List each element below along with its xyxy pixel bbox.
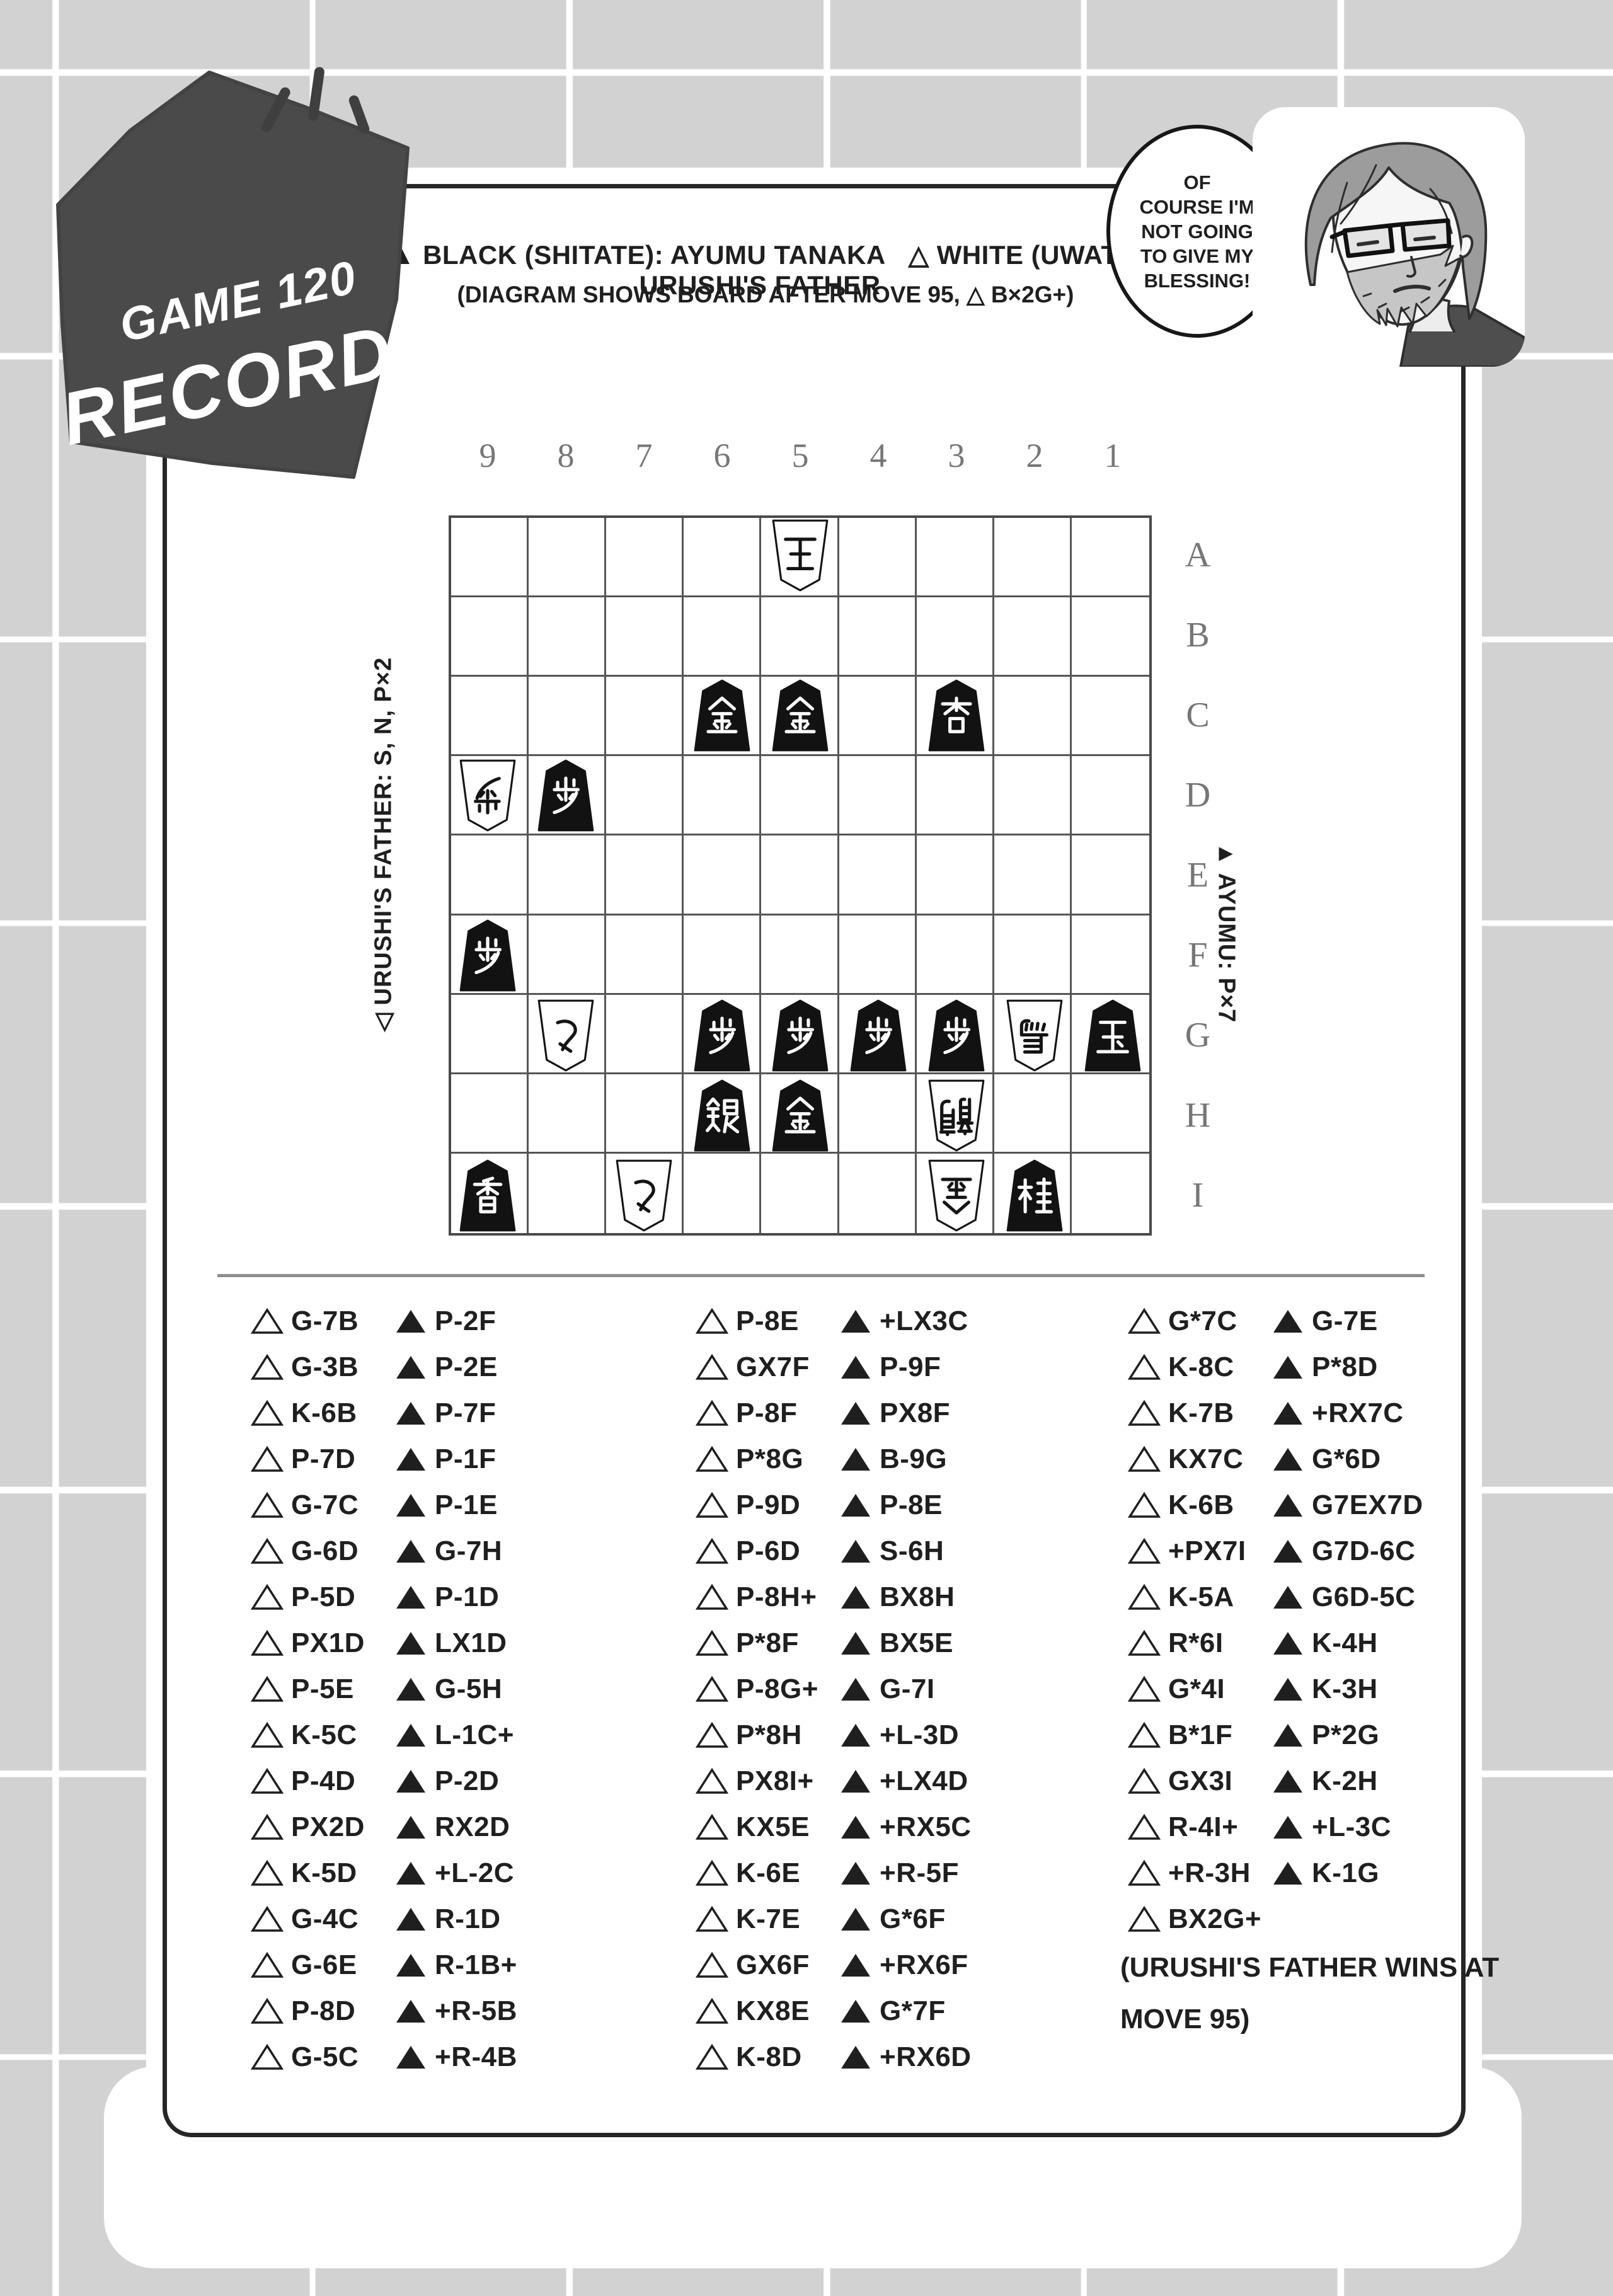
shogi-piece-black-pawn <box>454 918 521 996</box>
row-letter-label: I <box>1169 1156 1226 1236</box>
move-row: R*6IK-4H <box>1128 1620 1481 1666</box>
board-cell <box>1072 677 1149 756</box>
column-number-label: 1 <box>1074 436 1152 475</box>
black-move: +L-3C <box>1312 1804 1391 1850</box>
white-move-icon <box>696 1905 728 1933</box>
pawn-kanji-icon <box>689 998 755 1073</box>
board-cell <box>839 597 917 677</box>
black-move: BX8H <box>880 1574 955 1620</box>
move-row: R-4I++L-3C <box>1128 1804 1481 1850</box>
pawn-kanji-icon <box>923 998 990 1073</box>
move-row: K-7EG*6F <box>696 1896 1048 1942</box>
black-move-icon <box>1271 1767 1304 1795</box>
move-row: KX5E+RX5C <box>696 1804 1048 1850</box>
black-move-icon <box>839 1951 872 1979</box>
white-move: G-6D <box>291 1528 359 1574</box>
white-move-icon <box>251 1445 284 1473</box>
move-row: G-3BP-2E <box>251 1344 604 1390</box>
board-cell <box>606 756 684 835</box>
speech-line: COURSE I'M <box>1139 195 1254 219</box>
white-move: KX5E <box>736 1804 810 1850</box>
board-column-numbers: 987654321 <box>449 436 1152 473</box>
white-move: K-7B <box>1168 1390 1234 1436</box>
white-move-icon <box>1128 1307 1161 1335</box>
board-cell <box>917 518 994 597</box>
white-move-symbol <box>1128 1436 1161 1482</box>
move-row: BX2G+ <box>1128 1896 1481 1942</box>
black-move-icon <box>1271 1813 1304 1841</box>
white-move-icon <box>696 1307 728 1335</box>
white-move-icon <box>251 1951 284 1979</box>
black-move: G7D-6C <box>1312 1528 1415 1574</box>
white-hand-label: ◁ URUSHI'S FATHER: S, N, P×2 <box>369 657 398 1031</box>
board-cell <box>1072 835 1149 915</box>
white-move: PX8I+ <box>736 1758 814 1804</box>
white-move: P-8D <box>291 1988 355 2034</box>
white-move-symbol <box>251 1298 284 1344</box>
white-move: P*8F <box>736 1620 799 1666</box>
move-row: G-7CP-1E <box>251 1482 604 1528</box>
board-cell <box>684 518 761 597</box>
black-hand-label: ▲ AYUMU: P×7 <box>1213 842 1240 1023</box>
shogi-piece-black-gold <box>767 678 834 756</box>
black-move-icon <box>1271 1721 1304 1749</box>
black-move: P*8D <box>1312 1344 1378 1390</box>
black-move: K-2H <box>1312 1758 1378 1804</box>
dragon-kanji-icon <box>923 1078 990 1153</box>
speech-line: BLESSING! <box>1139 268 1254 293</box>
black-move-symbol <box>839 1988 872 2034</box>
black-move-symbol <box>839 1804 872 1850</box>
black-move-icon <box>394 1675 427 1703</box>
move-row: G-6ER-1B+ <box>251 1942 604 1988</box>
black-move-symbol <box>1271 1666 1304 1712</box>
black-move-symbol <box>1271 1344 1304 1390</box>
white-move: G-4C <box>291 1896 359 1942</box>
white-move: +PX7I <box>1168 1528 1246 1574</box>
black-move-symbol <box>394 1666 427 1712</box>
move-row: K-6BG7EX7D <box>1128 1482 1481 1528</box>
white-move-symbol <box>696 1390 728 1436</box>
white-move-symbol <box>696 1298 728 1344</box>
move-row: K-7B+RX7C <box>1128 1390 1481 1436</box>
move-row: K-6E+R-5F <box>696 1850 1048 1896</box>
white-move: R*6I <box>1168 1620 1224 1666</box>
black-move-symbol <box>1271 1298 1304 1344</box>
tokin-kanji-icon <box>532 998 599 1073</box>
white-move-icon <box>696 1629 728 1657</box>
shogi-piece-black-pawn <box>923 998 990 1076</box>
board-cell <box>761 597 839 677</box>
board-cell <box>839 1154 917 1233</box>
move-row: P*8FBX5E <box>696 1620 1048 1666</box>
move-row: KX8EG*7F <box>696 1988 1048 2034</box>
move-row: G*7CG-7E <box>1128 1298 1481 1344</box>
black-move-icon <box>394 1813 427 1841</box>
board-cell <box>606 916 684 995</box>
black-move: G7EX7D <box>1312 1482 1423 1528</box>
board-cell <box>529 916 606 995</box>
white-move: K-8D <box>736 2034 802 2080</box>
white-move-icon <box>251 1491 284 1519</box>
black-move-icon <box>839 1629 872 1657</box>
column-number-label: 3 <box>917 436 996 475</box>
gold-kanji-icon <box>923 1158 990 1233</box>
black-move-symbol <box>394 1804 427 1850</box>
black-move-symbol <box>1271 1390 1304 1436</box>
move-row: P*8GB-9G <box>696 1436 1048 1482</box>
move-row: K-8CP*8D <box>1128 1344 1481 1390</box>
black-move: P*2G <box>1312 1712 1379 1758</box>
white-move: P-8H+ <box>736 1574 817 1620</box>
black-move: +RX7C <box>1312 1390 1404 1436</box>
black-move-symbol <box>394 1528 427 1574</box>
gold-kanji-icon <box>767 678 834 753</box>
move-row: KX7CG*6D <box>1128 1436 1481 1482</box>
white-move-icon <box>1128 1491 1161 1519</box>
board-cell <box>839 835 917 915</box>
white-move: PX1D <box>291 1620 365 1666</box>
white-move-icon <box>696 1813 728 1841</box>
white-move-symbol <box>251 1666 284 1712</box>
shogi-piece-black-promoted-lance <box>923 678 990 756</box>
move-row: GX3IK-2H <box>1128 1758 1481 1804</box>
white-move-icon <box>1128 1445 1161 1473</box>
board-cell <box>1072 1074 1149 1154</box>
black-move: S-6H <box>880 1528 944 1574</box>
white-move-icon <box>1128 1813 1161 1841</box>
board-cell <box>451 518 529 597</box>
board-cell <box>684 916 761 995</box>
white-move-symbol <box>251 1482 284 1528</box>
black-move-symbol <box>839 2034 872 2080</box>
white-move: K-7E <box>736 1896 800 1942</box>
board-cell <box>529 677 606 756</box>
move-row: G-6DG-7H <box>251 1528 604 1574</box>
white-move: P-7D <box>291 1436 355 1482</box>
white-move-symbol <box>1128 1712 1161 1758</box>
white-move-symbol <box>696 1712 728 1758</box>
black-move-symbol <box>839 1298 872 1344</box>
black-move: G*6F <box>880 1896 946 1942</box>
shogi-piece-black-lance <box>454 1158 521 1236</box>
move-row: K-5CL-1C+ <box>251 1712 604 1758</box>
white-move-icon <box>696 1767 728 1795</box>
white-move-icon <box>1128 1399 1161 1427</box>
white-move-symbol <box>251 1758 284 1804</box>
speech-line: NOT GOING <box>1139 219 1254 244</box>
move-row: P-9DP-8E <box>696 1482 1048 1528</box>
row-letter-label: B <box>1169 595 1226 675</box>
white-move: GX7F <box>736 1344 810 1390</box>
white-move-icon <box>696 1951 728 1979</box>
shogi-piece-white-king <box>767 518 834 596</box>
board-cell <box>839 916 917 995</box>
black-move-icon <box>394 1721 427 1749</box>
black-move-symbol <box>839 1850 872 1896</box>
black-move-symbol <box>394 1574 427 1620</box>
white-move-symbol <box>251 1850 284 1896</box>
move-row: P-8FPX8F <box>696 1390 1048 1436</box>
black-move: K-1G <box>1312 1850 1379 1896</box>
row-letter-label: H <box>1169 1076 1226 1156</box>
board-cell <box>529 835 606 915</box>
board-cell <box>839 756 917 835</box>
white-move-icon <box>251 1767 284 1795</box>
black-move-icon <box>394 1353 427 1381</box>
move-row: P-7DP-1F <box>251 1436 604 1482</box>
white-move-icon <box>1128 1353 1161 1381</box>
white-move-symbol <box>696 2034 728 2080</box>
board-cell <box>684 835 761 915</box>
white-move-symbol <box>696 1620 728 1666</box>
black-move-symbol <box>839 1390 872 1436</box>
black-move: K-3H <box>1312 1666 1378 1712</box>
white-move-icon <box>251 1859 284 1887</box>
white-move-icon <box>696 1353 728 1381</box>
white-move: G-6E <box>291 1942 357 1988</box>
white-move: P-8G+ <box>736 1666 818 1712</box>
black-move-icon <box>394 2043 427 2071</box>
black-move: L-1C+ <box>435 1712 514 1758</box>
white-move-symbol <box>696 1804 728 1850</box>
board-cell <box>761 835 839 915</box>
move-row: +R-3HK-1G <box>1128 1850 1481 1896</box>
board-cell <box>606 995 684 1074</box>
shogi-piece-white-gold <box>923 1158 990 1236</box>
move-row: PX8I++LX4D <box>696 1758 1048 1804</box>
board-cell <box>606 1074 684 1154</box>
white-move-symbol <box>696 1482 728 1528</box>
white-move-icon <box>696 1491 728 1519</box>
pawn-kanji-icon <box>532 758 599 833</box>
white-move-symbol <box>1128 1896 1161 1942</box>
black-move-symbol <box>839 1344 872 1390</box>
black-move-icon <box>839 1997 872 2025</box>
white-move-icon <box>251 1997 284 2025</box>
white-move-symbol <box>696 1528 728 1574</box>
white-move-icon <box>251 1813 284 1841</box>
board-cell <box>839 1074 917 1154</box>
black-move-symbol <box>394 1390 427 1436</box>
board-cell <box>917 597 994 677</box>
white-move-symbol <box>696 1758 728 1804</box>
manga-game-record-page: GAME 120 RECORD ▲ BLACK (SHITATE): AYUMU… <box>0 0 1613 2296</box>
white-move-icon <box>1128 1583 1161 1611</box>
column-number-label: 9 <box>449 436 527 475</box>
white-move: GX3I <box>1168 1758 1232 1804</box>
black-move-icon <box>1271 1537 1304 1565</box>
black-move-symbol <box>1271 1712 1304 1758</box>
white-move: BX2G+ <box>1168 1896 1261 1942</box>
white-move: G-3B <box>291 1344 359 1390</box>
speech-line: TO GIVE MY <box>1139 244 1254 268</box>
black-move: G*7F <box>880 1988 946 2034</box>
gold-kanji-icon <box>767 1078 834 1153</box>
black-move-icon <box>839 1307 872 1335</box>
black-move: +LX4D <box>880 1758 968 1804</box>
shogi-piece-black-pawn <box>689 998 755 1076</box>
black-move-symbol <box>394 1896 427 1942</box>
board-cell <box>529 518 606 597</box>
horse-kanji-icon <box>1001 998 1068 1073</box>
board-cell <box>1072 518 1149 597</box>
knight-kanji-icon <box>1001 1158 1068 1233</box>
white-move-icon <box>1128 1905 1161 1933</box>
board-cell <box>994 518 1072 597</box>
pawn-kanji-icon <box>454 918 521 993</box>
move-row: K-5D+L-2C <box>251 1850 604 1896</box>
white-move-symbol <box>696 1988 728 2034</box>
black-move-icon <box>1271 1399 1304 1427</box>
shogi-piece-white-pawn <box>454 758 521 836</box>
move-row: PX1DLX1D <box>251 1620 604 1666</box>
move-row: P-8G+G-7I <box>696 1666 1048 1712</box>
black-move-symbol <box>1271 1850 1304 1896</box>
white-move-symbol <box>1128 1620 1161 1666</box>
black-move: +LX3C <box>880 1298 968 1344</box>
black-move-icon <box>839 1767 872 1795</box>
white-move: K-5C <box>291 1712 357 1758</box>
shogi-piece-white-horse <box>1001 998 1068 1076</box>
column-number-label: 8 <box>527 436 605 475</box>
black-move: P-1F <box>435 1436 496 1482</box>
black-move-icon <box>839 1491 872 1519</box>
black-move-icon <box>839 2043 872 2071</box>
board-cell <box>1072 597 1149 677</box>
shogi-piece-white-dragon <box>923 1078 990 1156</box>
board-cell <box>1072 756 1149 835</box>
white-move: G-7B <box>291 1298 359 1344</box>
black-move-icon <box>839 1859 872 1887</box>
black-move-icon <box>1271 1445 1304 1473</box>
black-move: P-1E <box>435 1482 498 1528</box>
column-number-label: 6 <box>683 436 761 475</box>
white-move-symbol <box>251 1988 284 2034</box>
black-move-symbol <box>394 1942 427 1988</box>
shogi-piece-black-silver <box>689 1078 755 1156</box>
black-move: B-9G <box>880 1436 947 1482</box>
white-move-symbol <box>696 1574 728 1620</box>
black-move: +L-2C <box>435 1850 514 1896</box>
black-move: BX5E <box>880 1620 953 1666</box>
white-move-symbol <box>251 1896 284 1942</box>
shogi-piece-black-pawn <box>767 998 834 1076</box>
black-move-icon <box>839 1721 872 1749</box>
row-letter-label: D <box>1169 755 1226 835</box>
black-move: RX2D <box>435 1804 510 1850</box>
black-move-symbol <box>839 1942 872 1988</box>
black-move-icon <box>839 1813 872 1841</box>
white-move: P-5E <box>291 1666 354 1712</box>
white-move-icon <box>696 1445 728 1473</box>
black-move-symbol <box>394 1620 427 1666</box>
black-move: P-7F <box>435 1390 496 1436</box>
black-move-symbol <box>839 1712 872 1758</box>
black-move-icon <box>1271 1675 1304 1703</box>
move-row: K-5AG6D-5C <box>1128 1574 1481 1620</box>
white-move-icon <box>251 1583 284 1611</box>
black-move: K-4H <box>1312 1620 1378 1666</box>
black-move: P-1D <box>435 1574 499 1620</box>
white-move-icon <box>251 1675 284 1703</box>
black-move-icon <box>839 1445 872 1473</box>
black-move-icon <box>394 1399 427 1427</box>
white-move-icon <box>696 1583 728 1611</box>
move-row: G*4IK-3H <box>1128 1666 1481 1712</box>
white-move: K-8C <box>1168 1344 1234 1390</box>
white-move: P-4D <box>291 1758 355 1804</box>
result-note-line1: (URUSHI'S FATHER WINS AT <box>1120 1952 1499 1983</box>
black-move-icon <box>394 1997 427 2025</box>
black-move-symbol <box>394 2034 427 2080</box>
move-row: G-7BP-2F <box>251 1298 604 1344</box>
black-move-symbol <box>1271 1436 1304 1482</box>
shogi-piece-white-tokin <box>611 1158 677 1236</box>
white-move-icon <box>251 1537 284 1565</box>
board-cell <box>761 756 839 835</box>
board-cell <box>529 597 606 677</box>
diagram-note: (DIAGRAM SHOWS BOARD AFTER MOVE 95, △ B×… <box>324 281 1207 308</box>
white-move-icon <box>251 2043 284 2071</box>
move-row: PX2DRX2D <box>251 1804 604 1850</box>
white-move-symbol <box>696 1850 728 1896</box>
board-cell <box>451 1074 529 1154</box>
move-row: K-6BP-7F <box>251 1390 604 1436</box>
white-move-symbol <box>251 1344 284 1390</box>
black-move: PX8F <box>880 1390 950 1436</box>
board-cell <box>606 677 684 756</box>
white-move: KX8E <box>736 1988 810 2034</box>
black-move: G6D-5C <box>1312 1574 1415 1620</box>
white-move-icon <box>251 1721 284 1749</box>
black-move: P-2E <box>435 1344 498 1390</box>
white-move-icon <box>251 1307 284 1335</box>
board-cell <box>684 756 761 835</box>
black-move-symbol <box>1271 1620 1304 1666</box>
black-move: G-7I <box>880 1666 935 1712</box>
white-move-icon <box>1128 1537 1161 1565</box>
white-move-symbol <box>696 1896 728 1942</box>
white-move-icon <box>251 1399 284 1427</box>
black-move: +R-5F <box>880 1850 959 1896</box>
white-move-icon <box>1128 1675 1161 1703</box>
black-move-icon <box>394 1951 427 1979</box>
move-row: P-8E+LX3C <box>696 1298 1048 1344</box>
shogi-piece-black-gold <box>689 678 755 756</box>
board-cell <box>994 835 1072 915</box>
black-move: +RX6F <box>880 1942 968 1988</box>
black-move: R-1B+ <box>435 1942 517 1988</box>
black-move-icon <box>394 1537 427 1565</box>
lance-kanji-icon <box>454 1158 521 1233</box>
black-move-icon <box>394 1905 427 1933</box>
black-move: +R-5B <box>435 1988 517 2034</box>
white-move-symbol <box>696 1436 728 1482</box>
white-move-symbol <box>251 2034 284 2080</box>
move-row: P-4DP-2D <box>251 1758 604 1804</box>
white-move: G*4I <box>1168 1666 1225 1712</box>
pawn-kanji-icon <box>454 758 521 833</box>
black-move: G-7E <box>1312 1298 1378 1344</box>
gold-kanji-icon <box>689 678 755 753</box>
row-letter-label: A <box>1169 515 1226 595</box>
board-cell <box>529 1154 606 1233</box>
white-move: P-5D <box>291 1574 355 1620</box>
speech-bubble-text: OFCOURSE I'MNOT GOINGTO GIVE MYBLESSING! <box>1139 170 1254 293</box>
black-move-symbol <box>394 1298 427 1344</box>
board-cell <box>994 1074 1072 1154</box>
